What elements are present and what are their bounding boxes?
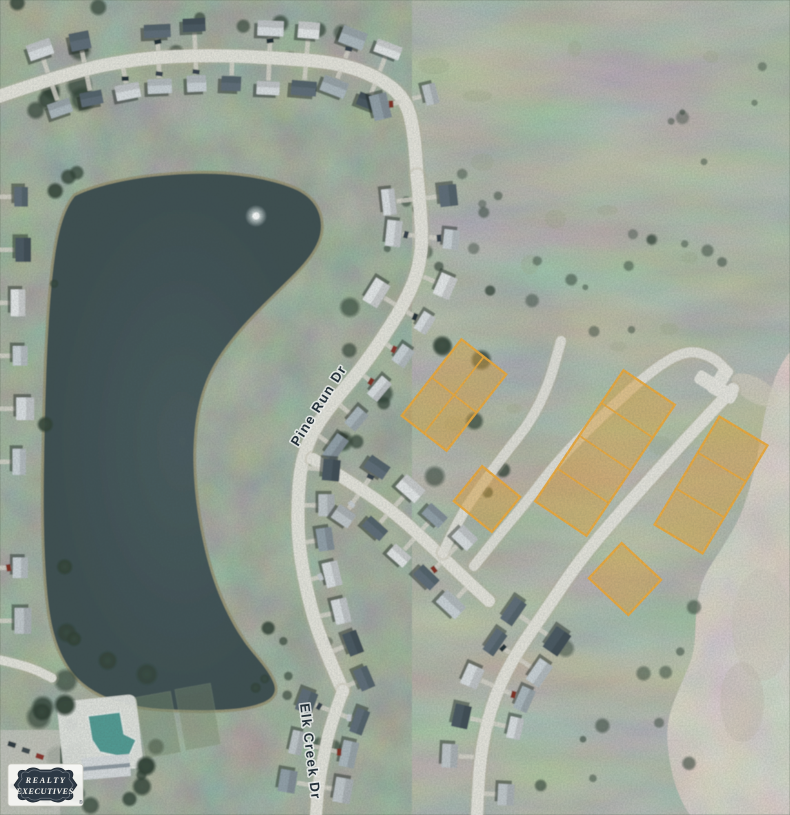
realty-executives-logo: REALTY EXECUTIVES ® [8,764,83,806]
aerial-map: Pine Run Dr Elk Creek Dr REALTY EXECUTIV… [0,0,790,815]
logo-text-realty: REALTY [25,776,67,785]
aerial-map-screenshot: Pine Run Dr Elk Creek Dr REALTY EXECUTIV… [0,0,790,815]
haze-overlay [0,0,790,815]
registered-trademark-symbol: ® [79,799,83,806]
logo-plaque [14,768,77,802]
logo-text-executives: EXECUTIVES [15,787,74,796]
